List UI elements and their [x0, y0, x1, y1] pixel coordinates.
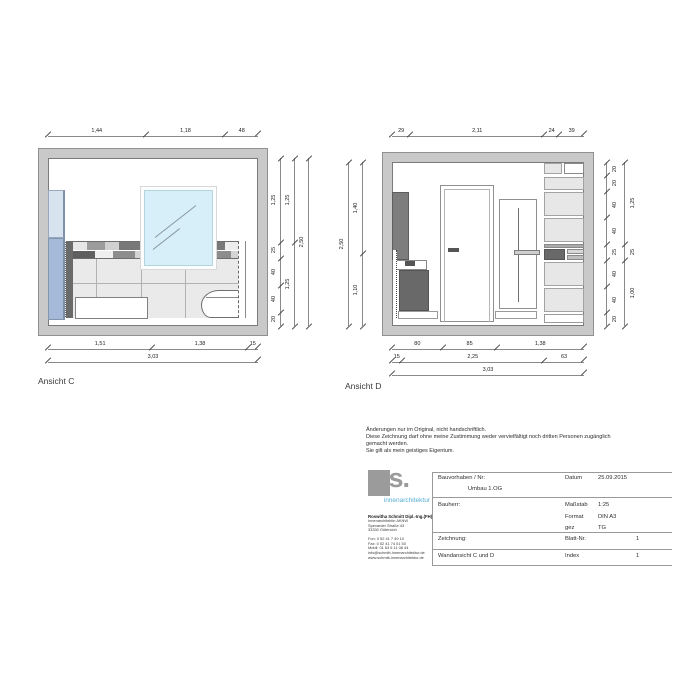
- dim-chain-d-bottom1: 80 85 1,38: [392, 349, 584, 350]
- dim-label: 24: [549, 128, 555, 134]
- table-border: [432, 565, 672, 566]
- dim-chain-c-bottom: 1,51 1,38 15: [48, 349, 258, 350]
- mirror-reflection-line: [153, 228, 180, 250]
- lower-cabinet: [399, 270, 429, 311]
- table-border: [432, 472, 672, 473]
- dim-chain-d-bottom2: 15 2,25 63: [392, 362, 584, 363]
- shelf-unit-shelf: [544, 288, 584, 312]
- bauvorhaben-label: Bauvorhaben / Nr:: [438, 475, 485, 481]
- dim-label: 15: [394, 354, 400, 360]
- dim-chain-d-right-inner: 20 20 40 40 25 40 40 20: [606, 162, 607, 326]
- format-label: Format: [565, 514, 583, 520]
- copyright-note-line: Änderungen nur im Original, nicht handsc…: [366, 427, 666, 434]
- table-border: [432, 549, 672, 550]
- door-frame: [444, 189, 490, 322]
- wall-section-hatch-right: [238, 241, 246, 318]
- shelf-unit-strip: [567, 255, 584, 260]
- shelf-unit-shelf: [544, 177, 584, 190]
- table-border: [432, 532, 672, 533]
- logo-subtitle: innenarchitektur: [372, 497, 430, 504]
- dim-label: 15: [250, 341, 256, 347]
- format-value: DIN A3: [598, 514, 616, 520]
- architect-contact: Fon: 0 52 41 7 49 10 Fax: 0 52 41 74 01 …: [368, 537, 425, 561]
- vanity-cabinet: [75, 297, 148, 319]
- blattnr-label: Blatt-Nr.: [565, 536, 586, 542]
- gez-value: TG: [598, 525, 606, 531]
- index-value: 1: [636, 553, 639, 559]
- blattnr-value: 1: [636, 536, 639, 542]
- dim-label: 3,03: [148, 354, 159, 360]
- dim-label: 3,03: [483, 367, 494, 373]
- drawing-sheet: { "colors": { "wall": "#c9c9c9", "wall_b…: [0, 0, 685, 684]
- index-label: Index: [565, 553, 579, 559]
- dim-label: 1,38: [535, 341, 546, 347]
- datum-label: Datum: [565, 475, 582, 481]
- dim-label: 1,51: [95, 341, 106, 347]
- wandansicht-label: Wandansicht C und D: [438, 553, 494, 559]
- tile-joint: [73, 283, 238, 284]
- dim-label: 2,25: [467, 354, 478, 360]
- copyright-note: Änderungen nur im Original, nicht handsc…: [366, 427, 666, 455]
- door: [440, 185, 494, 322]
- baseboard-left: [398, 311, 438, 319]
- shelf-unit-box: [544, 163, 562, 174]
- dim-chain-c-top: 1,44 1,18 48: [48, 136, 258, 137]
- table-border: [432, 497, 672, 498]
- shower-glass-panel-lower: [48, 238, 65, 320]
- copyright-note-line: Diese Zeichnung darf ohne meine Zustimmu…: [366, 434, 666, 441]
- ansicht-c-label: Ansicht C: [38, 376, 74, 386]
- zeichnung-label: Zeichnung:: [438, 536, 467, 542]
- shelf-unit-shelf: [544, 192, 584, 216]
- dim-label: 1,38: [195, 341, 206, 347]
- dim-label: 85: [467, 341, 473, 347]
- company-logo: rs.: [379, 463, 409, 494]
- dim-label: 29: [398, 128, 404, 134]
- mirror-glass: [144, 190, 213, 266]
- gez-label: gez: [565, 525, 574, 531]
- dim-chain-d-left-inner: 1,40 1,10: [362, 162, 363, 326]
- mirror-frame: [140, 186, 217, 270]
- dim-chain-c-right-inner: 1,25 25 40 40 20: [280, 158, 281, 326]
- dim-label: 80: [414, 341, 420, 347]
- dim-chain-c-right-total: 2,50: [308, 158, 309, 326]
- shelf-unit-band: [544, 244, 584, 248]
- dim-label: 63: [561, 354, 567, 360]
- massstab-value: 1:25: [598, 502, 609, 508]
- baseboard-right: [495, 311, 537, 319]
- ansicht-d-label: Ansicht D: [345, 381, 381, 391]
- wall-section-hatch-left: [65, 241, 73, 318]
- shelf-unit-box: [564, 163, 584, 174]
- shelf-unit-shelf: [544, 262, 584, 286]
- shower-glass-panel-upper: [48, 190, 65, 238]
- dim-label: 48: [239, 128, 245, 134]
- dim-chain-d-total: 3,03: [392, 375, 584, 376]
- shelf-unit-baseboard: [544, 314, 584, 323]
- copyright-note-line: gemacht werden.: [366, 441, 666, 448]
- shelf-unit-drawer: [544, 249, 565, 260]
- dim-chain-d-right-outer: 1,25 25 1,00: [624, 162, 625, 326]
- shelf-unit-strip: [567, 249, 584, 254]
- dim-chain-c-total: 3,03: [48, 362, 258, 363]
- copyright-note-line: Sie gilt als mein geistiges Eigentum.: [366, 448, 666, 455]
- datum-value: 25.09.2015: [598, 475, 627, 481]
- dim-label: 2,11: [472, 128, 482, 134]
- contact-line: www.schmitt-innenarchitektur.de: [368, 556, 425, 561]
- towel-radiator: [499, 199, 537, 309]
- door-handle: [448, 248, 459, 252]
- radiator-towel-bar: [514, 250, 540, 255]
- radiator-pipe: [518, 208, 519, 302]
- address-line: 33330 Gütersloh: [368, 528, 408, 533]
- dim-chain-c-right-mid: 1,25 1,25: [294, 158, 295, 326]
- dim-label: 1,18: [180, 128, 191, 134]
- toilet: [201, 290, 241, 318]
- shelf-unit-shelf: [544, 218, 584, 242]
- dim-label: 39: [569, 128, 575, 134]
- counter-edge-detail: [405, 261, 415, 266]
- bauvorhaben-value: Umbau 1.OG: [468, 486, 502, 492]
- mirror-reflection-line: [155, 205, 197, 238]
- massstab-label: Maßstab: [565, 502, 588, 508]
- section-hatch-line: [393, 250, 397, 318]
- title-block: rs. innenarchitektur Roswitha Schmitt Di…: [366, 468, 672, 568]
- architect-address: Innenarchitektin AKNW Spexarder Straße 4…: [368, 519, 408, 533]
- dim-chain-d-top: 29 2,11 24 39: [392, 136, 584, 137]
- toilet-seat-line: [206, 297, 240, 298]
- dim-label: 1,44: [91, 128, 102, 134]
- dim-chain-d-left-total: 2,50: [348, 162, 349, 326]
- bauherr-label: Bauherr:: [438, 502, 460, 508]
- table-border: [432, 472, 433, 566]
